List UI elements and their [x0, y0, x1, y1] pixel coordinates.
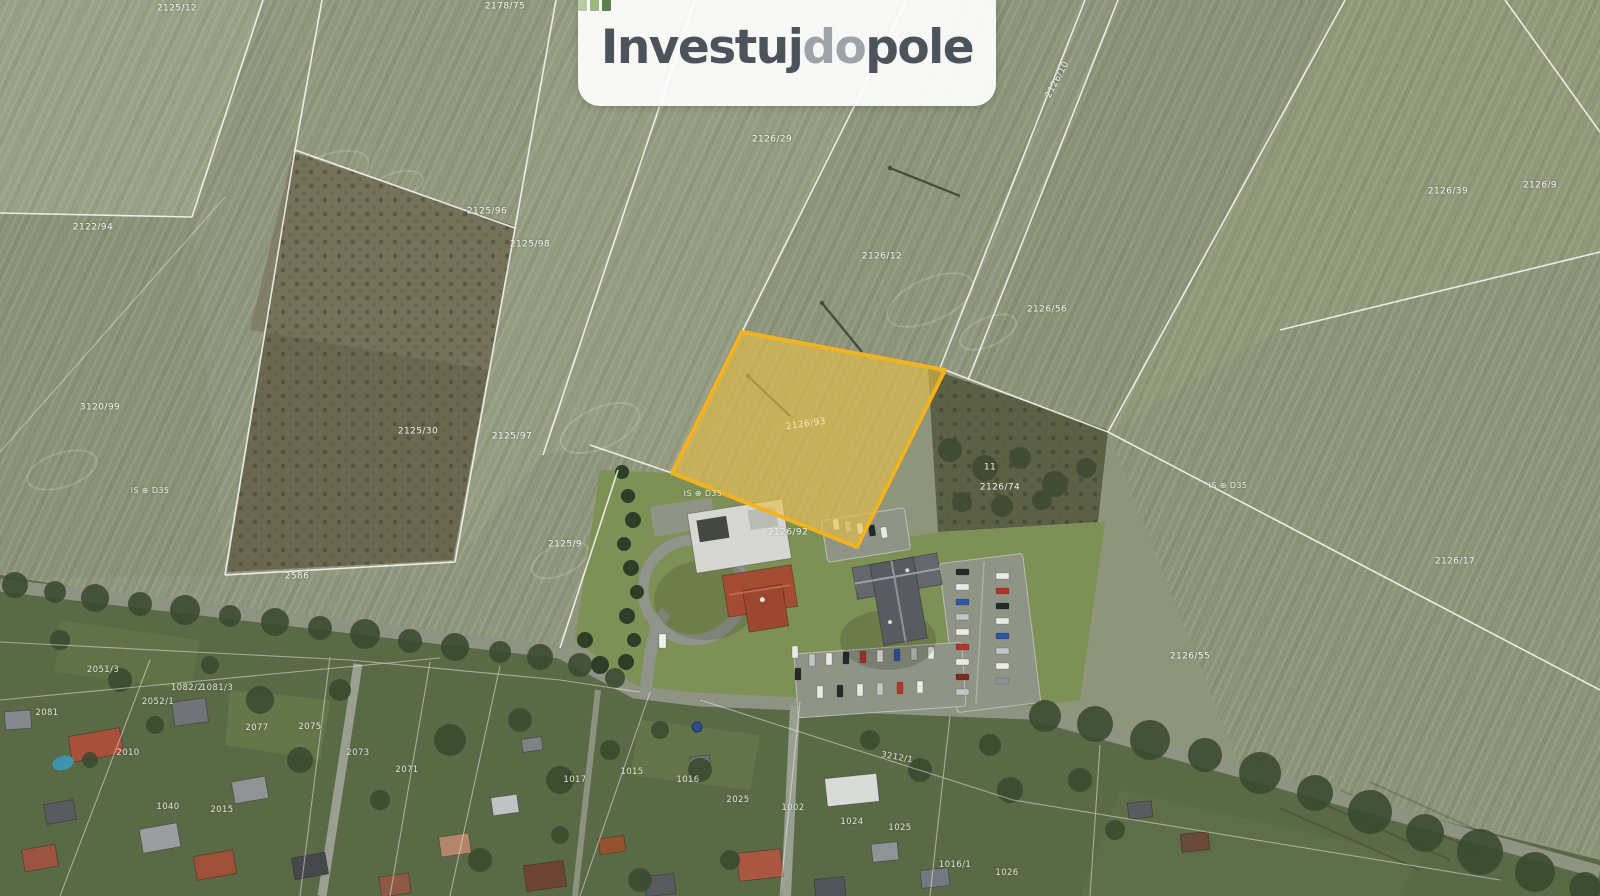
logo-bar [602, 0, 611, 11]
brand-wordmark: Investuj do pole [601, 24, 973, 71]
logo-bar [590, 0, 599, 11]
bar-chart-icon [578, 0, 612, 12]
logo-text-investuj: Investuj [601, 24, 802, 71]
map-canvas[interactable]: 2125/122178/752126/292126/122126/562126/… [0, 0, 1600, 896]
logo-bar [578, 0, 587, 11]
trampoline [692, 722, 702, 732]
logo-text-do: do [802, 24, 865, 71]
logo-text-pole: pole [865, 24, 973, 71]
satellite-map [0, 0, 1600, 896]
logo: Investuj do pole [578, 0, 996, 106]
